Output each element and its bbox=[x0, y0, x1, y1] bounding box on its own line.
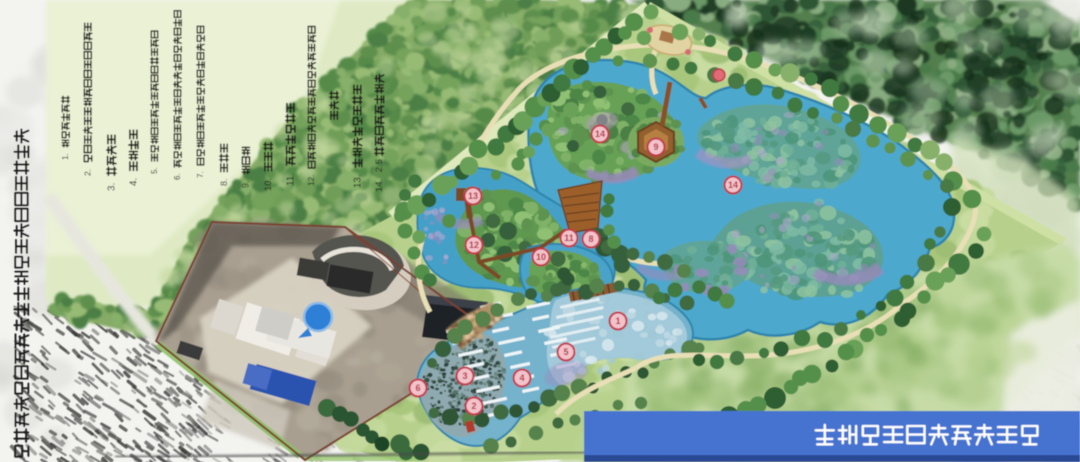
svg-text:12: 12 bbox=[469, 240, 479, 250]
svg-text:1.: 1. bbox=[61, 153, 70, 160]
svg-text:3: 3 bbox=[462, 371, 467, 381]
svg-text:6.: 6. bbox=[173, 173, 182, 180]
svg-text:6: 6 bbox=[415, 383, 420, 393]
svg-text:3.: 3. bbox=[106, 183, 117, 191]
svg-text:8.: 8. bbox=[219, 178, 229, 186]
svg-text:11.: 11. bbox=[285, 173, 296, 186]
svg-text:7.: 7. bbox=[196, 171, 205, 178]
svg-text:14.: 14. bbox=[374, 179, 385, 192]
svg-text:8: 8 bbox=[588, 234, 593, 244]
svg-text:11: 11 bbox=[564, 233, 574, 243]
svg-text:4.: 4. bbox=[128, 178, 139, 186]
svg-text:10.: 10. bbox=[262, 178, 273, 191]
svg-text:5.: 5. bbox=[150, 167, 159, 174]
svg-text:9.: 9. bbox=[241, 181, 251, 188]
svg-text:5: 5 bbox=[563, 347, 568, 357]
svg-text:12.: 12. bbox=[306, 174, 316, 186]
svg-text:14: 14 bbox=[728, 180, 738, 190]
svg-text:2.: 2. bbox=[82, 169, 92, 176]
svg-text:13: 13 bbox=[468, 191, 478, 201]
svg-text:10: 10 bbox=[536, 252, 546, 262]
svg-text:1: 1 bbox=[615, 316, 620, 326]
svg-text:14: 14 bbox=[595, 129, 605, 139]
svg-text:2: 2 bbox=[471, 401, 476, 411]
svg-text:9: 9 bbox=[653, 142, 658, 152]
svg-text:4: 4 bbox=[519, 373, 524, 383]
svg-text:13.: 13. bbox=[352, 175, 363, 188]
svg-text:2.5: 2.5 bbox=[374, 159, 385, 172]
